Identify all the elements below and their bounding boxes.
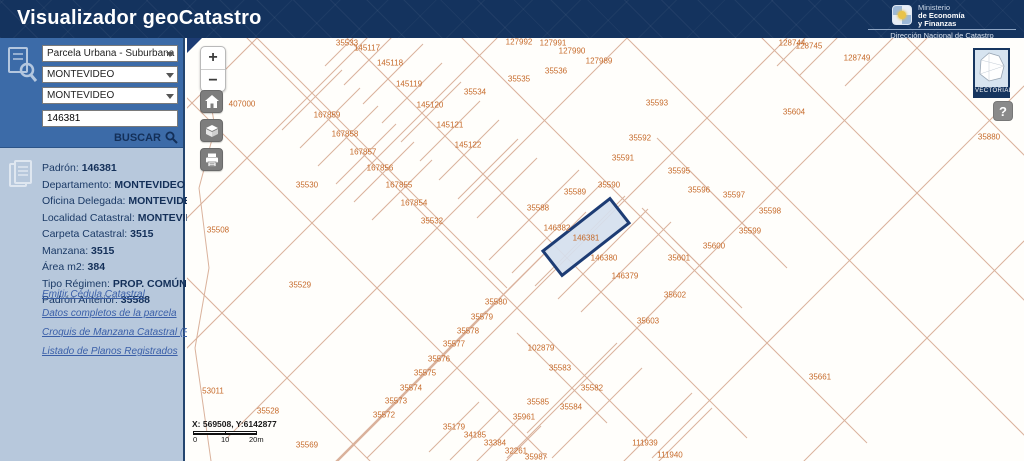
buscar-label: BUSCAR — [114, 132, 161, 144]
scale-tick-20: 20m — [249, 435, 264, 444]
uruguay-emblem-icon — [892, 5, 912, 25]
buscar-button[interactable]: BUSCAR — [42, 131, 178, 144]
sidebar-link[interactable]: Datos completos de la parcela — [42, 308, 182, 319]
scale-tick-0: 0 — [193, 435, 197, 444]
locality-select[interactable]: MONTEVIDEO — [42, 87, 178, 104]
coordinates-readout: X: 569508, Y:6142877 — [192, 419, 277, 429]
geocatastro-app: Visualizador geoCatastro Ministerio de E… — [0, 0, 1024, 461]
info-row: Oficina Delegada: MONTEVIDEO — [42, 195, 182, 207]
parcel-type-select[interactable]: Parcela Urbana - Suburbana — [42, 45, 178, 62]
chevron-down-icon — [166, 73, 174, 78]
search-panel: Parcela Urbana - Suburbana MONTEVIDEO MO… — [0, 38, 183, 148]
chevron-down-icon — [166, 52, 174, 57]
info-row: Localidad Catastral: MONTEVIDEO — [42, 212, 182, 224]
overview-map[interactable]: VECTORIAL — [973, 48, 1010, 98]
uruguay-map-icon — [975, 50, 1008, 87]
tools-button[interactable] — [200, 119, 223, 142]
map-area[interactable]: 3553314511714511814511914512014512114512… — [187, 38, 1024, 461]
department-value: MONTEVIDEO — [47, 69, 114, 80]
home-icon — [205, 95, 219, 108]
search-icon — [165, 131, 178, 144]
parcel-type-value: Parcela Urbana - Suburbana — [47, 48, 174, 59]
info-row: Manzana: 3515 — [42, 245, 182, 257]
info-row: Padrón: 146381 — [42, 162, 182, 174]
sidebar-link[interactable]: Croquis de Manzana Catastral (PDF) — [42, 327, 182, 338]
documents-icon — [6, 158, 40, 203]
padron-input[interactable] — [42, 110, 178, 127]
scale-bar: 0 10 20m — [193, 431, 263, 444]
info-row: Área m2: 384 — [42, 261, 182, 273]
sidebar-link[interactable]: Emitir Cédula Catastral — [42, 289, 182, 300]
ministry-logo-block: Ministerio de Economía y Finanzas Direcc… — [868, 2, 1016, 36]
cube-icon — [205, 124, 219, 138]
ministry-line3: y Finanzas — [918, 20, 965, 28]
info-row: Tipo Régimen: PROP. COMÚN — [42, 278, 182, 290]
map-lines — [187, 38, 1024, 461]
scale-tick-10: 10 — [221, 435, 229, 444]
zoom-in-button[interactable]: + — [201, 47, 225, 69]
info-row: Carpeta Catastral: 3515 — [42, 228, 182, 240]
parcel-search-icon — [6, 46, 38, 89]
home-button[interactable] — [200, 90, 223, 113]
sidebar-link[interactable]: Listado de Planos Registrados — [42, 346, 182, 357]
info-row: Departamento: MONTEVIDEO — [42, 179, 182, 191]
help-button[interactable]: ? — [993, 101, 1013, 121]
sidebar-links: Emitir Cédula CatastralDatos completos d… — [42, 289, 182, 365]
app-header: Visualizador geoCatastro Ministerio de E… — [0, 0, 1024, 38]
locality-value: MONTEVIDEO — [47, 90, 114, 101]
vectorial-label: VECTORIAL — [975, 87, 1008, 96]
zoom-out-button[interactable]: − — [201, 70, 225, 92]
zoom-control: + − — [200, 46, 226, 92]
chevron-down-icon — [166, 94, 174, 99]
department-select[interactable]: MONTEVIDEO — [42, 66, 178, 83]
printer-icon — [205, 153, 219, 167]
page-title: Visualizador geoCatastro — [17, 7, 262, 30]
sidebar: Parcela Urbana - Suburbana MONTEVIDEO MO… — [0, 38, 185, 461]
print-button[interactable] — [200, 148, 223, 171]
